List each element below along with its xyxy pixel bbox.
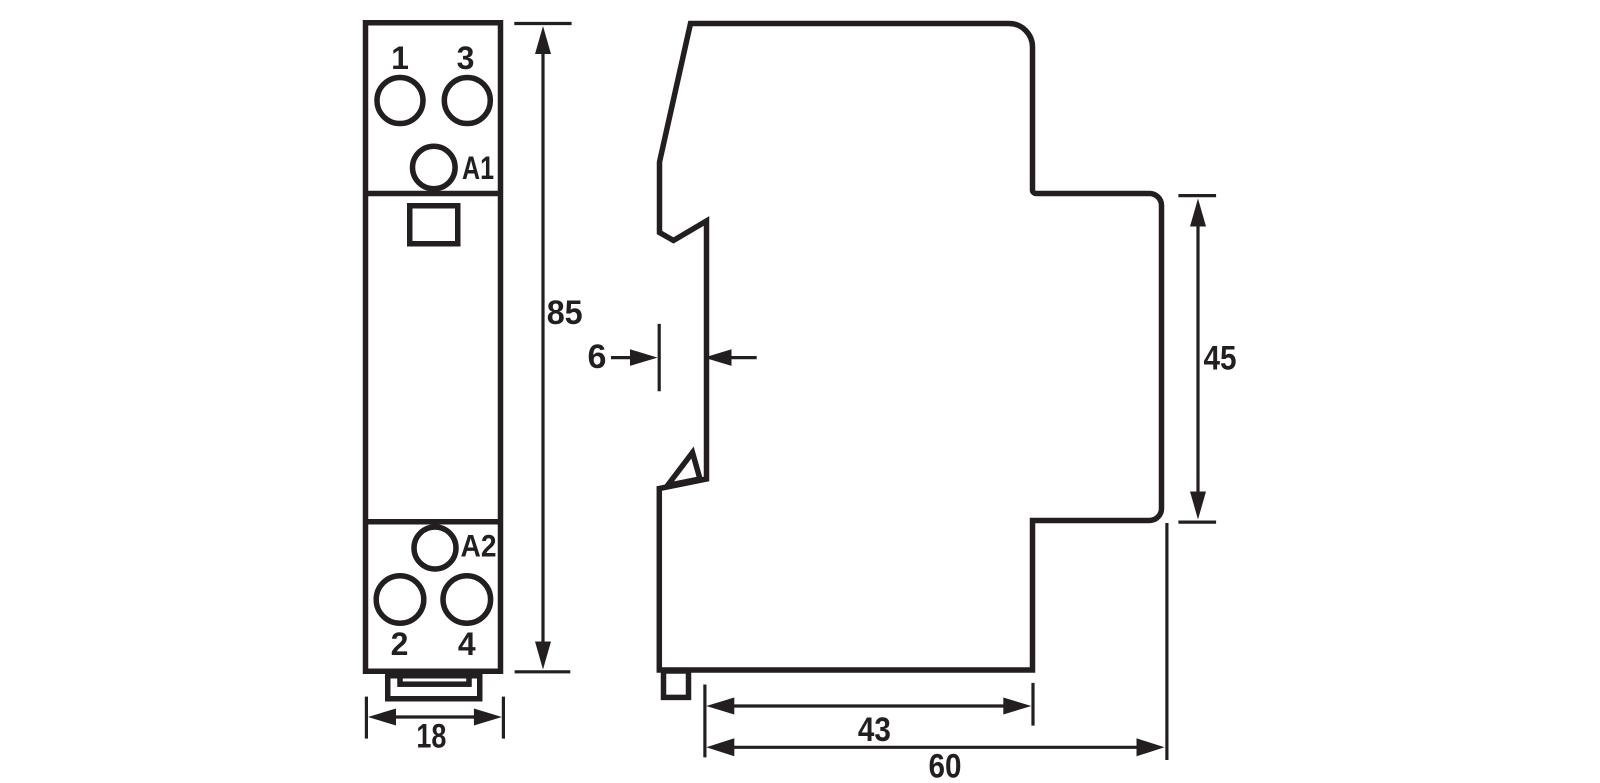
svg-text:4: 4 [458, 626, 476, 662]
svg-text:45: 45 [1204, 340, 1237, 378]
svg-text:85: 85 [547, 294, 583, 332]
svg-text:1: 1 [391, 40, 409, 76]
svg-text:43: 43 [858, 711, 891, 749]
svg-text:A1: A1 [462, 150, 494, 186]
svg-text:2: 2 [391, 626, 409, 662]
svg-text:60: 60 [929, 748, 962, 783]
svg-text:3: 3 [457, 40, 475, 76]
svg-text:6: 6 [588, 338, 607, 376]
svg-text:A2: A2 [461, 528, 497, 564]
svg-text:18: 18 [416, 718, 446, 756]
